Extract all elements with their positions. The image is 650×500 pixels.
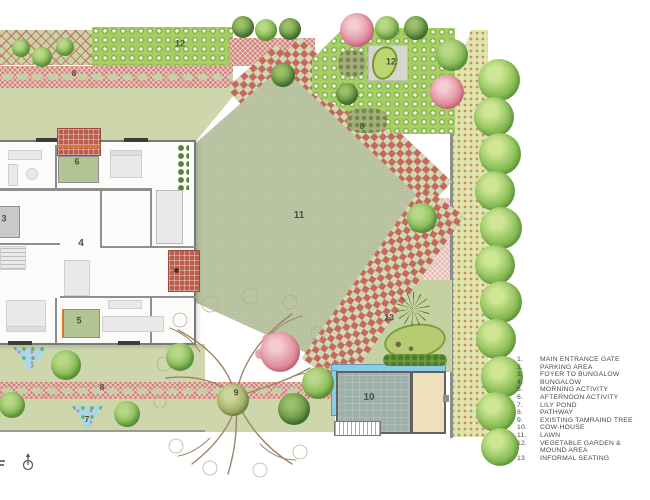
tree bbox=[474, 97, 514, 137]
legend-number: 9. bbox=[517, 417, 540, 425]
tree bbox=[271, 63, 295, 87]
shrub-planter bbox=[177, 144, 189, 190]
planting-beds-north bbox=[0, 88, 240, 143]
window bbox=[36, 138, 58, 142]
legend-label: LILY POND bbox=[540, 402, 649, 410]
legend-row: 9.EXISTING TAMRAIND TREE bbox=[517, 417, 649, 425]
plan-number-label: 4 bbox=[78, 239, 84, 249]
legend-number: 12. bbox=[517, 440, 540, 448]
scale-mark bbox=[0, 460, 5, 462]
legend-number: 11. bbox=[517, 432, 540, 440]
wall bbox=[0, 188, 152, 191]
flowering-tree bbox=[340, 13, 374, 47]
pillow bbox=[110, 150, 142, 156]
wall bbox=[100, 246, 196, 248]
stairs bbox=[0, 246, 26, 270]
window bbox=[8, 341, 32, 345]
shrub-hedge bbox=[383, 354, 447, 366]
legend-row: 12.VEGETABLE GARDEN & bbox=[517, 440, 649, 448]
wall bbox=[100, 190, 102, 248]
terrace-north bbox=[57, 128, 101, 156]
legend: 1.MAIN ENTRANCE GATE2.PARKING AREA3.FOYE… bbox=[517, 356, 649, 462]
legend-number: 3. bbox=[517, 371, 540, 379]
legend-label: MOUND AREA bbox=[540, 447, 649, 455]
legend-row: 10.COW-HOUSE bbox=[517, 424, 649, 432]
tree bbox=[404, 16, 428, 40]
tree bbox=[481, 428, 519, 466]
scale-mark bbox=[0, 464, 4, 466]
legend-row: 11.LAWN bbox=[517, 432, 649, 440]
plan-number-label: 12 bbox=[175, 40, 185, 49]
tree bbox=[479, 133, 521, 175]
tree bbox=[336, 83, 358, 105]
legend-label: EXISTING TAMRAIND TREE bbox=[540, 417, 649, 425]
pebble-court bbox=[156, 190, 183, 244]
tree bbox=[407, 203, 437, 233]
tree bbox=[232, 16, 254, 38]
legend-row: 1.MAIN ENTRANCE GATE bbox=[517, 356, 649, 364]
shrub-bed bbox=[338, 50, 366, 77]
wall bbox=[0, 243, 60, 245]
north-arrow-icon bbox=[20, 453, 36, 473]
legend-number: 13 bbox=[517, 455, 540, 463]
tree bbox=[475, 245, 515, 285]
plan-number-label: 10 bbox=[363, 393, 374, 403]
plan-number-label: 7 bbox=[85, 415, 90, 424]
legend-label: VEGETABLE GARDEN & bbox=[540, 440, 649, 448]
tree bbox=[478, 59, 520, 101]
legend-label: PATHWAY bbox=[540, 409, 649, 417]
legend-label: FOYER TO BUNGALOW bbox=[540, 371, 649, 379]
legend-number: 10. bbox=[517, 424, 540, 432]
legend-row: 7.LILY POND bbox=[517, 402, 649, 410]
legend-label: LAWN bbox=[540, 432, 649, 440]
wall bbox=[55, 298, 57, 343]
table bbox=[26, 168, 38, 180]
legend-label: MORNING ACTIVITY bbox=[540, 386, 649, 394]
tree bbox=[476, 392, 516, 432]
legend-label: BUNGALOW bbox=[540, 379, 649, 387]
legend-row: MOUND AREA bbox=[517, 447, 649, 455]
plan-number-label: 5 bbox=[76, 317, 81, 326]
shrub-bed bbox=[347, 108, 387, 133]
tree bbox=[51, 350, 81, 380]
legend-row: 3.FOYER TO BUNGALOW bbox=[517, 371, 649, 379]
tree bbox=[114, 401, 140, 427]
legend-label: PARKING AREA bbox=[540, 364, 649, 372]
spiky-plant bbox=[396, 292, 430, 326]
legend-number: 5. bbox=[517, 386, 540, 394]
flowering-tree bbox=[260, 332, 300, 372]
kitchen-island bbox=[108, 300, 142, 309]
vegetable-garden bbox=[92, 27, 233, 66]
legend-number: 4. bbox=[517, 379, 540, 387]
plan-number-label: 6 bbox=[74, 158, 79, 167]
legend-row: 6.AFTERNOON ACTIVITY bbox=[517, 394, 649, 402]
legend-label: COW-HOUSE bbox=[540, 424, 649, 432]
tree bbox=[32, 47, 52, 67]
plan-number-label: 3 bbox=[1, 215, 6, 224]
window bbox=[118, 341, 140, 345]
plan-number-label: 13 bbox=[384, 314, 394, 323]
plan-number-label: 8 bbox=[100, 383, 105, 392]
legend-label: INFORMAL SEATING bbox=[540, 455, 649, 463]
legend-number: 6. bbox=[517, 394, 540, 402]
flowering-tree bbox=[430, 75, 464, 109]
tree bbox=[436, 39, 468, 71]
legend-row: 2.PARKING AREA bbox=[517, 364, 649, 372]
legend-label: AFTERNOON ACTIVITY bbox=[540, 394, 649, 402]
legend-number: 2. bbox=[517, 364, 540, 372]
legend-number: 1. bbox=[517, 356, 540, 364]
tree bbox=[480, 281, 522, 323]
tree bbox=[302, 367, 334, 399]
pillow bbox=[6, 326, 46, 332]
tree bbox=[279, 18, 301, 40]
plan-number-label: 9 bbox=[233, 389, 238, 398]
tree bbox=[255, 19, 277, 41]
accent-line bbox=[57, 145, 101, 148]
legend-row: 5.MORNING ACTIVITY bbox=[517, 386, 649, 394]
legend-row: 13INFORMAL SEATING bbox=[517, 455, 649, 463]
tree bbox=[375, 16, 399, 40]
legend-number bbox=[517, 447, 540, 455]
steps bbox=[334, 421, 381, 436]
dining-table bbox=[64, 260, 90, 296]
wall bbox=[150, 190, 152, 248]
legend-number: 8. bbox=[517, 409, 540, 417]
tree bbox=[475, 171, 515, 211]
sofa bbox=[8, 164, 18, 186]
sofa bbox=[8, 150, 42, 160]
tree bbox=[278, 393, 310, 425]
tree bbox=[476, 319, 516, 359]
window bbox=[124, 138, 148, 142]
legend-row: 4.BUNGALOW bbox=[517, 379, 649, 387]
gate-knob bbox=[443, 395, 449, 402]
tree bbox=[12, 39, 30, 57]
legend-label: MAIN ENTRANCE GATE bbox=[540, 356, 649, 364]
tree bbox=[56, 38, 74, 56]
cow-yard-sand bbox=[411, 371, 446, 434]
legend-number: 7. bbox=[517, 402, 540, 410]
plan-number-label: 8 bbox=[72, 69, 77, 78]
plan-number-label: 8 bbox=[360, 122, 365, 131]
tree bbox=[166, 343, 194, 371]
plan-number-label: 12 bbox=[386, 58, 396, 67]
tree bbox=[0, 392, 25, 418]
legend-row: 8.PATHWAY bbox=[517, 409, 649, 417]
pathway-north bbox=[0, 66, 233, 88]
tree bbox=[480, 207, 522, 249]
plan-number-label: 11 bbox=[294, 211, 305, 221]
